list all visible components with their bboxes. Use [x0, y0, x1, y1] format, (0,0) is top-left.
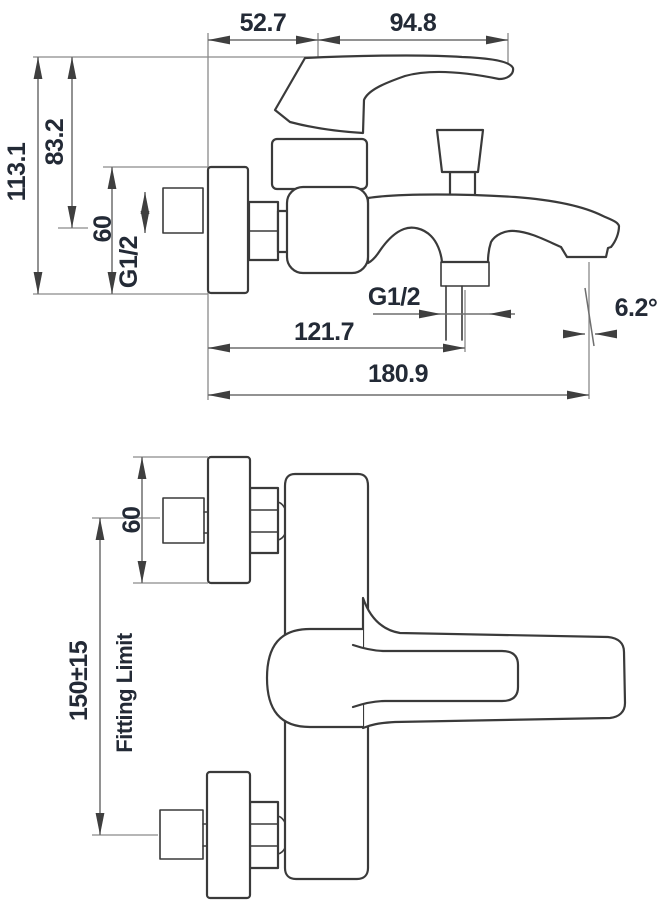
dim-label-121-7: 121.7	[294, 318, 354, 346]
bath-mixer-drawing: 52.7 94.8 113.1 83.2 60 G1/2 G1/2	[0, 0, 661, 903]
upper-inlet-thread	[163, 498, 204, 543]
lower-bracket-plate	[207, 772, 250, 898]
outlet-thread-label: G1/2	[368, 283, 420, 311]
dim-total-projection: 180.9	[208, 360, 589, 395]
dim-label-83-2: 83.2	[41, 119, 69, 166]
angle-label: 6.2°	[615, 294, 658, 322]
inlet-connector-thread	[163, 188, 203, 233]
dim-bracket-height-plan: 60	[118, 457, 146, 583]
dim-label-60-side: 60	[89, 216, 117, 243]
diverter-stem	[450, 172, 475, 196]
dim-label-94-8: 94.8	[390, 9, 437, 37]
dim-handle-length: 94.8	[318, 9, 508, 40]
dim-fitting-distance: 150±15 Fitting Limit	[65, 518, 137, 835]
cartridge-housing	[272, 139, 367, 189]
dim-label-60-plan: 60	[118, 507, 146, 534]
dim-upper-height: 83.2	[41, 57, 72, 228]
dim-label-180-9: 180.9	[368, 360, 428, 388]
dim-wall-to-outlet: 121.7	[208, 318, 465, 348]
mixer-body	[287, 187, 368, 273]
dim-handle-offset: 52.7	[208, 9, 318, 40]
lower-hex-nut	[250, 802, 278, 868]
upper-bracket-plate	[208, 457, 250, 583]
handle-cap-front	[267, 629, 363, 727]
plan-view: 60 150±15 Fitting Limit	[65, 457, 625, 898]
dim-label-52-7: 52.7	[240, 9, 287, 37]
diverter-knob	[437, 130, 483, 172]
spout	[368, 195, 619, 264]
wall-plate	[208, 167, 248, 293]
lower-inlet-thread	[160, 810, 203, 859]
upper-hex-nut	[250, 488, 278, 553]
dim-label-113-1: 113.1	[3, 142, 31, 201]
dim-inlet-thread: G1/2	[115, 192, 145, 288]
fitting-limit-label: Fitting Limit	[112, 632, 137, 753]
technical-drawing-page: 52.7 94.8 113.1 83.2 60 G1/2 G1/2	[0, 0, 661, 903]
dim-outlet-thread: G1/2	[368, 283, 515, 314]
shower-outlet-thread	[441, 262, 489, 286]
dim-spout-angle: 6.2°	[563, 294, 657, 334]
handle-lever-front	[353, 645, 518, 707]
dim-label-150: 150±15	[65, 640, 93, 721]
side-view: 52.7 94.8 113.1 83.2 60 G1/2 G1/2	[3, 9, 657, 400]
handle-lever	[275, 55, 513, 133]
dim-total-height: 113.1	[3, 57, 38, 294]
inlet-thread-label: G1/2	[115, 236, 143, 288]
dim-bracket-height-side: 60	[89, 167, 117, 294]
